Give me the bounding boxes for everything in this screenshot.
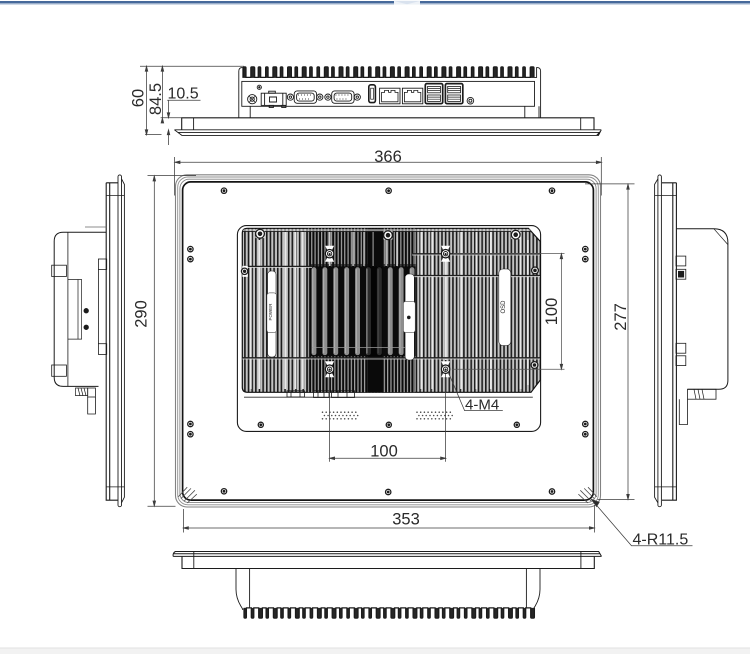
svg-text:277: 277 bbox=[612, 303, 630, 331]
svg-text:290: 290 bbox=[133, 300, 151, 328]
svg-text:10.5: 10.5 bbox=[168, 85, 199, 102]
svg-text:100: 100 bbox=[370, 443, 398, 461]
svg-text:60: 60 bbox=[130, 89, 148, 107]
svg-text:366: 366 bbox=[374, 148, 402, 166]
svg-text:POWER: POWER bbox=[268, 303, 273, 321]
svg-text:353: 353 bbox=[392, 511, 420, 529]
svg-text:4-M4: 4-M4 bbox=[465, 396, 499, 413]
svg-text:OSD: OSD bbox=[501, 300, 507, 314]
svg-text:100: 100 bbox=[543, 298, 561, 326]
svg-text:84.5: 84.5 bbox=[147, 83, 165, 115]
svg-text:4-R11.5: 4-R11.5 bbox=[633, 532, 689, 549]
